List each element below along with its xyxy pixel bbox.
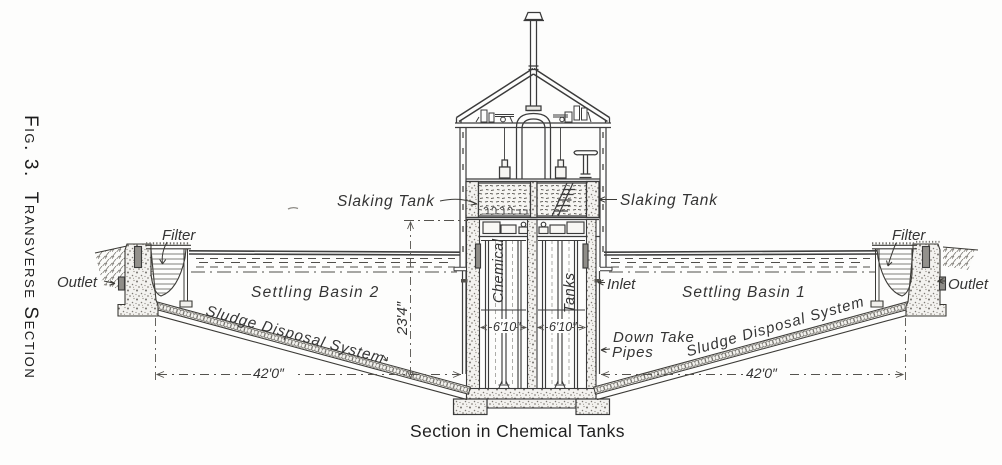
svg-text:Settling Basin 1: Settling Basin 1 — [682, 284, 806, 301]
svg-text:6′10″: 6′10″ — [493, 320, 521, 334]
svg-text:Fig. 3. Transverse Section: Fig. 3. Transverse Section — [20, 115, 41, 379]
svg-text:Filter: Filter — [892, 227, 926, 244]
svg-text:Slaking Tank: Slaking Tank — [337, 193, 435, 210]
svg-text:Chemical: Chemical — [491, 238, 507, 303]
svg-text:Inlet: Inlet — [607, 276, 636, 293]
svg-text:Slaking Tank: Slaking Tank — [620, 192, 718, 209]
svg-text:6′10″: 6′10″ — [549, 320, 577, 334]
svg-text:42′0″: 42′0″ — [746, 365, 778, 381]
svg-text:Settling Basin 2: Settling Basin 2 — [251, 284, 380, 301]
svg-text:Section in Chemical Tanks: Section in Chemical Tanks — [410, 421, 625, 441]
svg-text:42′0″: 42′0″ — [253, 365, 285, 381]
svg-text:Tanks: Tanks — [562, 272, 578, 313]
svg-text:Outlet: Outlet — [57, 274, 98, 291]
svg-text:23′4″: 23′4″ — [394, 301, 411, 336]
svg-text:Pipes: Pipes — [612, 344, 654, 361]
svg-text:Outlet: Outlet — [948, 276, 989, 293]
svg-text:Filter: Filter — [162, 227, 196, 244]
